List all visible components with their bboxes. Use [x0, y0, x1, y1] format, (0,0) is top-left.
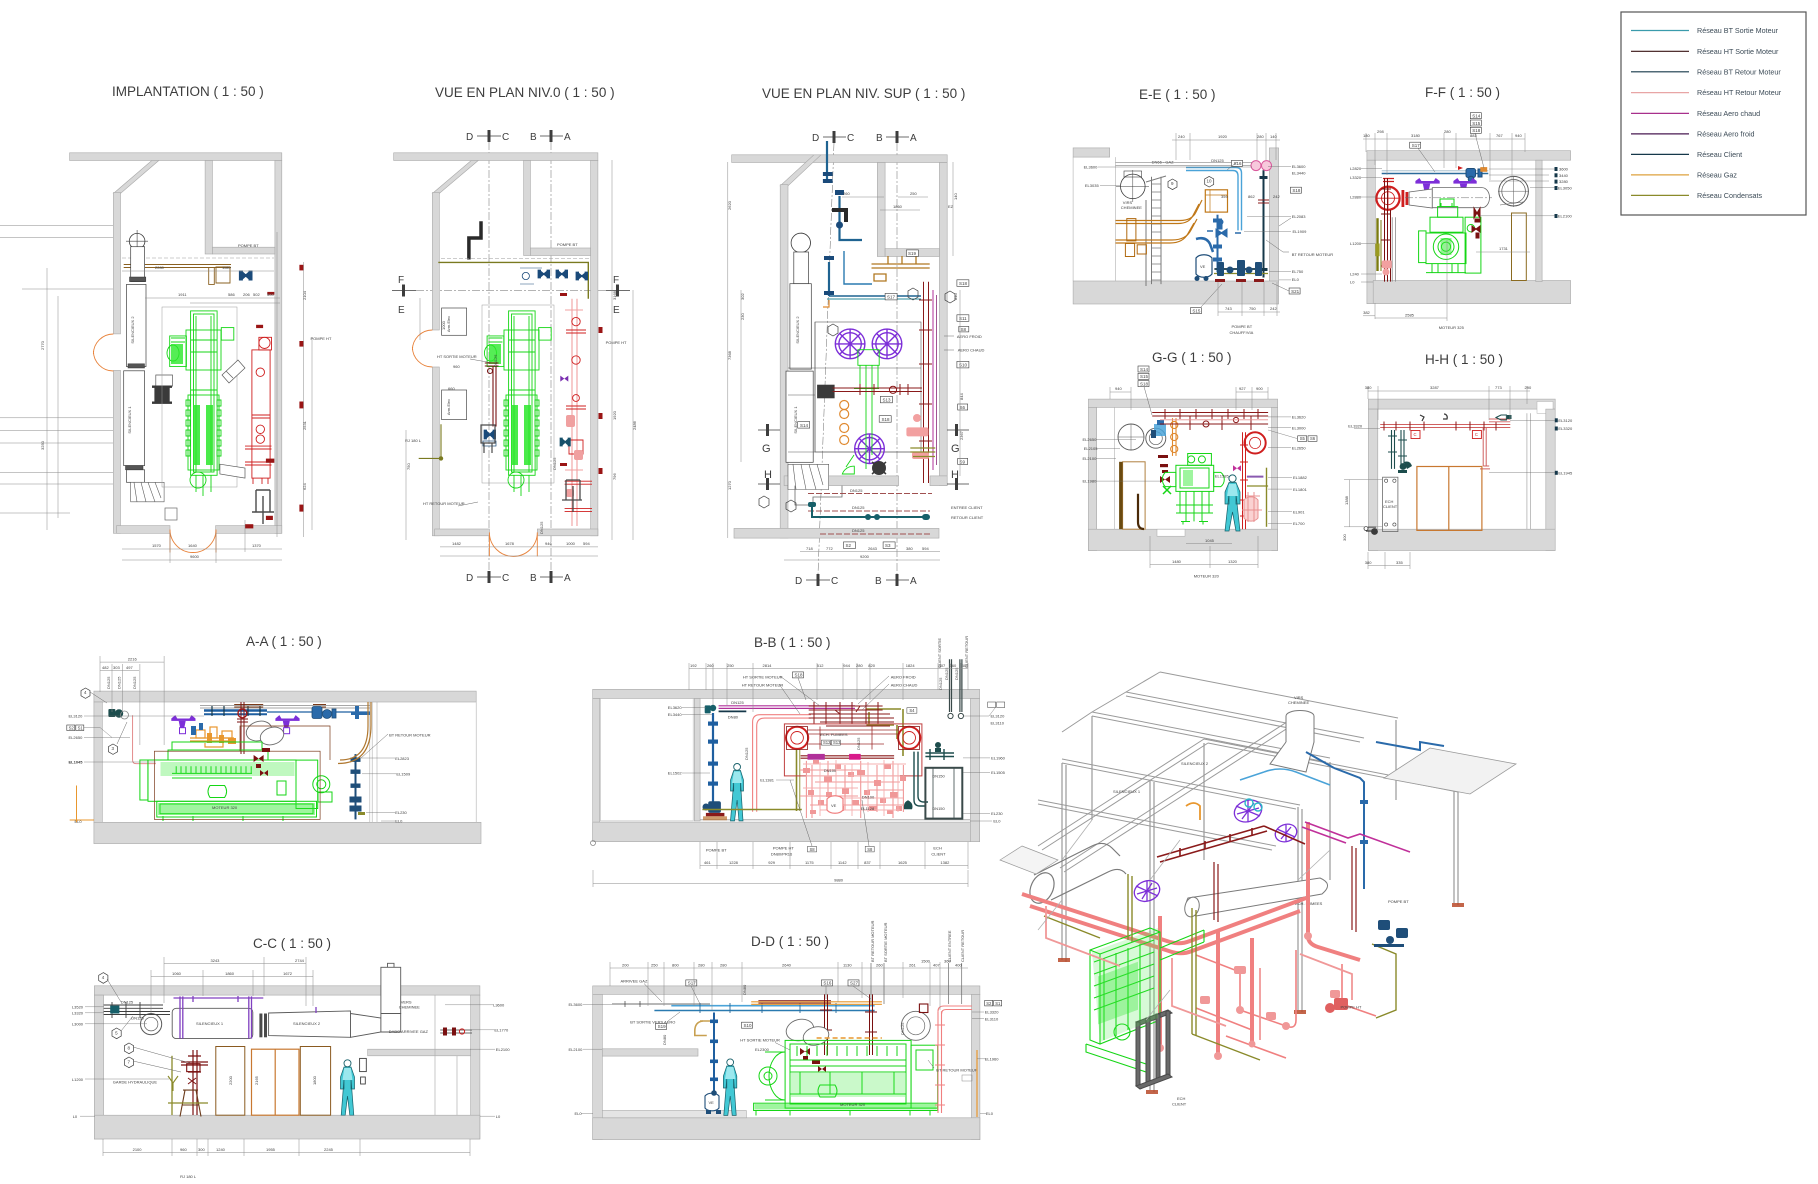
svg-text:1911: 1911 [178, 292, 187, 297]
svg-text:S8: S8 [810, 847, 816, 852]
svg-text:DABO ARRIVEE GAZ: DABO ARRIVEE GAZ [389, 1029, 429, 1034]
svg-text:S14: S14 [1472, 114, 1481, 119]
svg-text:1570: 1570 [152, 543, 162, 548]
svg-text:773: 773 [1495, 385, 1502, 390]
svg-text:1500: 1500 [921, 959, 931, 964]
svg-text:S8: S8 [867, 847, 873, 852]
svg-text:1640: 1640 [188, 543, 198, 548]
svg-text:DN125: DN125 [938, 677, 943, 690]
svg-text:SILENCIEUX 2: SILENCIEUX 2 [795, 316, 800, 344]
svg-text:DN125: DN125 [900, 1022, 905, 1035]
svg-text:750: 750 [1249, 306, 1256, 311]
svg-text:IMPLANTATION ( 1 : 50 ): IMPLANTATION ( 1 : 50 ) [112, 84, 264, 99]
svg-text:EL1505: EL1505 [991, 770, 1006, 775]
svg-text:DN125: DN125 [850, 488, 863, 493]
svg-text:SILENCIEUX 2: SILENCIEUX 2 [1181, 761, 1209, 766]
svg-text:DN125: DN125 [944, 667, 949, 680]
svg-text:S9: S9 [960, 460, 966, 465]
svg-text:L3600: L3600 [493, 1003, 505, 1008]
svg-text:2245: 2245 [324, 1147, 334, 1152]
svg-text:E: E [398, 305, 405, 316]
svg-text:EL3440: EL3440 [1292, 170, 1307, 175]
svg-text:RJ 180 L: RJ 180 L [180, 1174, 197, 1179]
svg-text:EL3110: EL3110 [985, 1016, 999, 1021]
svg-text:Réseau HT Retour Moteur: Réseau HT Retour Moteur [1697, 88, 1782, 97]
svg-text:EL3120: EL3120 [991, 714, 1006, 719]
svg-text:2280: 2280 [155, 265, 165, 270]
svg-text:F-F ( 1 : 50 ): F-F ( 1 : 50 ) [1425, 85, 1500, 100]
svg-text:820: 820 [868, 663, 875, 668]
svg-text:594: 594 [583, 541, 590, 546]
svg-text:2200: 2200 [228, 1075, 233, 1085]
svg-text:S19: S19 [908, 251, 917, 256]
svg-text:VUE EN PLAN NIV.0 ( 1 : 50 ): VUE EN PLAN NIV.0 ( 1 : 50 ) [435, 85, 615, 100]
svg-text:3180: 3180 [1411, 133, 1421, 138]
svg-text:140: 140 [953, 193, 958, 200]
svg-text:S3: S3 [885, 543, 891, 548]
svg-text:S13: S13 [833, 740, 841, 745]
svg-text:DN100: DN100 [862, 795, 875, 800]
svg-text:A: A [564, 573, 571, 584]
svg-text:500: 500 [267, 292, 274, 297]
svg-text:B: B [530, 132, 537, 143]
svg-text:EZ: EZ [948, 204, 954, 209]
svg-text:CLIENT RETOUR: CLIENT RETOUR [960, 930, 965, 962]
svg-text:359: 359 [1221, 194, 1228, 199]
svg-text:S21: S21 [1291, 289, 1300, 294]
svg-text:S18: S18 [1140, 381, 1149, 386]
svg-text:Réseau HT Sortie Moteur: Réseau HT Sortie Moteur [1697, 47, 1779, 56]
svg-text:L3320: L3320 [1350, 175, 1362, 180]
svg-text:9200: 9200 [860, 554, 870, 559]
svg-text:3440: 3440 [1559, 173, 1569, 178]
svg-text:AERO FROID: AERO FROID [957, 334, 982, 339]
svg-text:L0: L0 [73, 1114, 78, 1119]
svg-text:VE: VE [709, 1100, 715, 1105]
svg-text:840: 840 [953, 293, 958, 300]
svg-text:S14: S14 [1140, 367, 1149, 372]
svg-text:1860: 1860 [893, 204, 903, 209]
svg-text:S2: S2 [986, 1001, 992, 1006]
svg-text:S17: S17 [1412, 143, 1421, 148]
svg-text:EL1960: EL1960 [991, 756, 1006, 761]
svg-text:2486: 2486 [632, 420, 637, 430]
svg-text:EL0: EL0 [986, 1111, 994, 1116]
svg-text:335: 335 [1396, 560, 1403, 565]
svg-text:1320: 1320 [1228, 559, 1238, 564]
svg-text:1388: 1388 [1344, 495, 1349, 505]
svg-text:767: 767 [1496, 133, 1503, 138]
svg-text:L1200: L1200 [72, 1077, 84, 1082]
svg-text:1860: 1860 [225, 971, 235, 976]
svg-text:G: G [951, 443, 960, 455]
svg-text:2100: 2100 [133, 1147, 143, 1152]
svg-text:250: 250 [651, 963, 658, 968]
svg-text:B: B [530, 573, 537, 584]
svg-text:DN125: DN125 [131, 1015, 144, 1020]
svg-text:L3520: L3520 [72, 1005, 84, 1010]
svg-text:9600: 9600 [190, 554, 200, 559]
svg-text:S15: S15 [1472, 121, 1481, 126]
svg-text:S18: S18 [1292, 188, 1301, 193]
svg-text:EL750: EL750 [1292, 269, 1304, 274]
svg-text:EL1980: EL1980 [1083, 479, 1098, 484]
svg-text:C: C [502, 573, 509, 584]
svg-text:1270: 1270 [727, 480, 732, 490]
svg-text:DN125: DN125 [954, 667, 959, 680]
svg-text:S8: S8 [961, 327, 967, 332]
svg-text:VE: VE [831, 803, 837, 808]
svg-text:407: 407 [939, 663, 946, 668]
svg-text:F: F [613, 275, 619, 286]
svg-text:2620: 2620 [727, 200, 732, 210]
svg-text:2770: 2770 [40, 340, 45, 350]
svg-text:242: 242 [1273, 194, 1280, 199]
svg-text:EL1960: EL1960 [985, 1057, 1000, 1062]
svg-text:940: 940 [1515, 133, 1522, 138]
svg-text:200: 200 [622, 963, 629, 968]
svg-text:400: 400 [955, 963, 962, 968]
svg-text:482: 482 [102, 665, 109, 670]
svg-text:VUE EN PLAN NIV. SUP ( 1 : 50: VUE EN PLAN NIV. SUP ( 1 : 50 ) [762, 86, 965, 101]
svg-text:EL1945: EL1945 [1558, 471, 1573, 476]
svg-text:L1200: L1200 [1350, 241, 1362, 246]
svg-text:1228: 1228 [729, 860, 739, 865]
svg-text:772: 772 [826, 546, 833, 551]
svg-text:BT RETOUR MOTEUR: BT RETOUR MOTEUR [1292, 252, 1334, 257]
svg-text:1672: 1672 [283, 971, 293, 976]
svg-text:S19: S19 [658, 1024, 667, 1029]
svg-text:382: 382 [1363, 310, 1370, 315]
svg-text:Réseau BT Retour Moteur: Réseau BT Retour Moteur [1697, 67, 1781, 76]
svg-text:CLIENT: CLIENT [1383, 504, 1398, 509]
svg-text:AERO CHAUD: AERO CHAUD [891, 683, 918, 688]
svg-text:2744: 2744 [295, 958, 305, 963]
svg-text:EL2100: EL2100 [1083, 456, 1098, 461]
svg-text:280: 280 [1257, 134, 1264, 139]
svg-text:DN100: DN100 [824, 768, 837, 773]
svg-text:1180: 1180 [222, 265, 231, 270]
svg-text:206: 206 [243, 292, 250, 297]
svg-text:S17: S17 [688, 981, 697, 986]
svg-text:L2880: L2880 [1350, 195, 1362, 200]
svg-text:844: 844 [959, 393, 964, 400]
svg-text:MOTEUR 320: MOTEUR 320 [212, 805, 238, 810]
svg-text:3243: 3243 [211, 958, 221, 963]
svg-text:HT RETOUR MOTEUR: HT RETOUR MOTEUR [423, 501, 465, 506]
svg-text:S1: S1 [995, 1001, 1001, 1006]
svg-text:240: 240 [1178, 134, 1185, 139]
svg-text:CHEMINEE: CHEMINEE [399, 1005, 420, 1010]
svg-text:S1: S1 [78, 725, 84, 730]
svg-text:POMPE HT: POMPE HT [606, 340, 627, 345]
svg-text:927: 927 [1239, 386, 1246, 391]
svg-text:280: 280 [856, 663, 863, 668]
svg-text:900: 900 [1256, 386, 1263, 391]
svg-text:S4: S4 [909, 708, 915, 713]
svg-text:261: 261 [909, 963, 916, 968]
svg-text:S6: S6 [1310, 436, 1316, 441]
svg-text:1678: 1678 [505, 541, 515, 546]
svg-text:G-G ( 1 : 50 ): G-G ( 1 : 50 ) [1152, 350, 1232, 365]
svg-text:EL2650: EL2650 [1083, 437, 1098, 442]
svg-text:EL3110: EL3110 [991, 720, 1005, 725]
svg-text:7368: 7368 [727, 350, 732, 360]
svg-text:EL3050: EL3050 [1558, 186, 1573, 191]
svg-text:A: A [910, 576, 917, 587]
svg-text:SILENCIEUX 2: SILENCIEUX 2 [130, 316, 135, 344]
svg-text:EL3600: EL3600 [569, 1002, 584, 1007]
svg-text:D: D [466, 573, 473, 584]
svg-text:Réseau BT Sortie Moteur: Réseau BT Sortie Moteur [1697, 26, 1779, 35]
svg-text:DN125: DN125 [106, 676, 111, 689]
svg-text:GARDE HYDRAULIQUE: GARDE HYDRAULIQUE [113, 1080, 158, 1085]
svg-text:Arm.Elec: Arm.Elec [446, 316, 451, 332]
svg-text:EL1801: EL1801 [1293, 487, 1308, 492]
svg-text:S13: S13 [883, 398, 892, 403]
svg-text:D: D [795, 576, 802, 587]
svg-text:EL3620: EL3620 [1292, 415, 1307, 420]
svg-text:718: 718 [806, 546, 813, 551]
svg-text:1175: 1175 [805, 860, 814, 865]
svg-text:E: E [613, 305, 620, 316]
svg-text:192: 192 [690, 663, 697, 668]
svg-text:497: 497 [126, 665, 133, 670]
svg-text:A-A ( 1 : 50 ): A-A ( 1 : 50 ) [246, 634, 322, 649]
svg-text:EL3440: EL3440 [668, 712, 683, 717]
svg-text:242: 242 [1270, 306, 1277, 311]
svg-text:380: 380 [1365, 385, 1372, 390]
svg-text:DN125: DN125 [493, 354, 498, 367]
svg-text:1955: 1955 [266, 1147, 276, 1152]
svg-text:10: 10 [1207, 179, 1213, 184]
svg-text:800: 800 [672, 963, 679, 968]
svg-text:CLIENT: CLIENT [931, 852, 946, 857]
svg-text:3168: 3168 [612, 290, 617, 300]
svg-text:944: 944 [843, 663, 850, 668]
svg-text:DN125: DN125 [539, 521, 544, 534]
svg-text:EL3320: EL3320 [1348, 424, 1363, 429]
svg-text:L0: L0 [1350, 280, 1355, 285]
svg-text:C: C [847, 133, 854, 144]
svg-text:B: B [876, 133, 883, 144]
svg-text:ARRIVEE GAZ: ARRIVEE GAZ [621, 979, 648, 984]
svg-text:H-H ( 1 : 50 ): H-H ( 1 : 50 ) [1425, 352, 1503, 367]
svg-text:EL3120: EL3120 [69, 714, 84, 719]
svg-text:EL1882: EL1882 [1293, 475, 1308, 480]
svg-text:796: 796 [612, 473, 617, 480]
svg-text:S18: S18 [882, 417, 891, 422]
svg-text:MOTEUR 320: MOTEUR 320 [1194, 574, 1220, 579]
svg-text:512: 512 [817, 663, 824, 668]
svg-text:BT RETOUR MOTEUR: BT RETOUR MOTEUR [870, 920, 875, 962]
svg-text:EL1585: EL1585 [1215, 474, 1230, 479]
svg-text:S16: S16 [823, 981, 832, 986]
svg-text:SILENCIEUX 1: SILENCIEUX 1 [793, 406, 798, 434]
svg-text:EL0: EL0 [993, 819, 1001, 824]
svg-text:298: 298 [1377, 129, 1384, 134]
svg-text:1731: 1731 [1499, 246, 1509, 251]
svg-text:S2: S2 [69, 725, 75, 730]
svg-text:HT SORTIE MOTEUR: HT SORTIE MOTEUR [740, 1038, 780, 1043]
svg-text:SILENCIEUX 1: SILENCIEUX 1 [196, 1021, 224, 1026]
svg-text:3250: 3250 [40, 440, 45, 450]
svg-text:250: 250 [727, 663, 734, 668]
svg-text:POMPE HT: POMPE HT [311, 336, 332, 341]
svg-text:EL3000: EL3000 [1292, 425, 1307, 430]
svg-text:Réseau Aero chaud: Réseau Aero chaud [1697, 109, 1760, 118]
svg-text:DN125: DN125 [744, 747, 749, 760]
svg-text:S12: S12 [823, 740, 831, 745]
svg-text:940: 940 [1115, 386, 1122, 391]
svg-text:260: 260 [707, 663, 714, 668]
svg-text:D-D ( 1 : 50 ): D-D ( 1 : 50 ) [751, 934, 829, 949]
svg-text:S10: S10 [959, 363, 968, 368]
svg-text:S15: S15 [1192, 309, 1201, 314]
svg-text:3600: 3600 [1559, 167, 1569, 172]
svg-text:502: 502 [253, 292, 260, 297]
svg-text:Réseau Aero froid: Réseau Aero froid [1697, 129, 1755, 138]
svg-text:POMPE BT: POMPE BT [557, 242, 578, 247]
svg-text:CHEMINEE: CHEMINEE [1288, 700, 1309, 705]
svg-text:POMPE BT: POMPE BT [238, 243, 259, 248]
svg-text:EL230: EL230 [991, 811, 1003, 816]
svg-text:B: B [875, 576, 882, 587]
svg-text:EL3320: EL3320 [1558, 426, 1573, 431]
svg-text:DN125: DN125 [856, 737, 861, 750]
svg-text:960: 960 [180, 1147, 187, 1152]
svg-text:ECH: ECH [1177, 1096, 1186, 1101]
svg-text:EL0: EL0 [395, 819, 403, 824]
svg-text:C-C ( 1 : 50 ): C-C ( 1 : 50 ) [253, 936, 331, 951]
svg-text:SILENCIEUX 2: SILENCIEUX 2 [293, 1021, 321, 1026]
svg-text:EL0: EL0 [1292, 277, 1300, 282]
svg-text:VE: VE [1200, 264, 1206, 269]
svg-text:EL2100: EL2100 [496, 1047, 511, 1052]
svg-text:586: 586 [228, 292, 235, 297]
svg-text:MOTEUR 320: MOTEUR 320 [840, 1102, 866, 1107]
svg-text:EL2300: EL2300 [755, 1047, 770, 1052]
svg-text:360: 360 [950, 663, 957, 668]
svg-text:2643: 2643 [868, 546, 878, 551]
svg-text:HT RETOUR MOTEUR: HT RETOUR MOTEUR [742, 683, 784, 688]
svg-text:2585: 2585 [1405, 313, 1415, 318]
svg-text:EL1381: EL1381 [760, 777, 775, 782]
svg-text:POMPE HT: POMPE HT [773, 846, 794, 851]
svg-text:BT RETOUR MOTEUR: BT RETOUR MOTEUR [936, 1068, 978, 1073]
svg-text:EL1502: EL1502 [668, 771, 683, 776]
svg-text:A: A [910, 133, 917, 144]
svg-text:1920: 1920 [1218, 134, 1228, 139]
svg-text:CLIENT ENTREE: CLIENT ENTREE [947, 930, 952, 962]
svg-text:RETOUR CLIENT: RETOUR CLIENT [951, 515, 984, 520]
svg-text:BT SORTIE MOTEUR: BT SORTIE MOTEUR [883, 922, 888, 962]
svg-text:G: G [762, 443, 771, 455]
svg-text:2165: 2165 [254, 1075, 259, 1085]
svg-text:1130: 1130 [843, 963, 852, 968]
svg-text:DN80/PR16: DN80/PR16 [771, 852, 793, 857]
svg-text:EL3600: EL3600 [1292, 164, 1307, 169]
svg-text:EL3320: EL3320 [985, 1010, 1000, 1015]
svg-text:929: 929 [768, 860, 775, 865]
svg-text:EL1045: EL1045 [69, 760, 84, 765]
svg-text:EL1909: EL1909 [1293, 229, 1308, 234]
svg-text:180: 180 [1363, 133, 1370, 138]
svg-text:DN80: DN80 [742, 984, 747, 995]
svg-text:DN150: DN150 [932, 806, 945, 811]
svg-text:EL1770: EL1770 [494, 1028, 509, 1033]
svg-text:C: C [831, 576, 838, 587]
svg-text:946: 946 [545, 541, 552, 546]
svg-text:L3000: L3000 [72, 1021, 84, 1026]
svg-text:HT SORTIE MOTEUR: HT SORTIE MOTEUR [743, 675, 783, 680]
svg-text:407: 407 [933, 963, 940, 968]
svg-text:1000: 1000 [566, 541, 576, 546]
svg-text:743: 743 [1225, 306, 1232, 311]
svg-text:1045: 1045 [1205, 538, 1215, 543]
svg-text:3280: 3280 [1559, 179, 1569, 184]
svg-text:D: D [812, 133, 819, 144]
svg-text:461: 461 [704, 860, 711, 865]
svg-text:L2820: L2820 [1350, 166, 1362, 171]
svg-text:S18: S18 [795, 673, 804, 678]
svg-text:S6: S6 [960, 405, 966, 410]
svg-text:S18: S18 [959, 281, 968, 286]
svg-text:1482: 1482 [452, 541, 462, 546]
svg-text:AERO CHAUD: AERO CHAUD [958, 348, 985, 353]
svg-text:960: 960 [453, 364, 460, 369]
svg-text:300: 300 [198, 1147, 205, 1152]
svg-text:POMPE BT: POMPE BT [1388, 899, 1409, 904]
svg-text:2531: 2531 [302, 420, 307, 430]
svg-text:1370: 1370 [252, 543, 262, 548]
svg-text:EL2083: EL2083 [1292, 214, 1307, 219]
svg-text:DN150: DN150 [932, 774, 945, 779]
svg-text:S2: S2 [846, 543, 852, 548]
svg-text:2104: 2104 [302, 290, 307, 300]
svg-text:1000: 1000 [441, 320, 446, 330]
svg-text:HT SORTIE MOTEUR: HT SORTIE MOTEUR [437, 354, 477, 359]
svg-text:ENTREE CLIENT: ENTREE CLIENT [951, 505, 983, 510]
svg-text:DN125: DN125 [852, 528, 865, 533]
svg-text:ECH: ECH [933, 846, 942, 851]
svg-text:260: 260 [843, 191, 850, 196]
svg-text:2216: 2216 [128, 657, 138, 662]
svg-text:EL2823: EL2823 [395, 756, 410, 761]
svg-text:3287: 3287 [1430, 385, 1440, 390]
svg-text:S10: S10 [744, 1023, 753, 1028]
svg-text:750: 750 [406, 463, 411, 470]
svg-text:S5: S5 [1300, 436, 1306, 441]
svg-text:POMPE BT: POMPE BT [1232, 324, 1253, 329]
svg-text:EL3035: EL3035 [1085, 183, 1100, 188]
svg-text:D: D [466, 132, 473, 143]
svg-text:837: 837 [864, 860, 871, 865]
svg-text:290: 290 [1525, 385, 1532, 390]
svg-text:280: 280 [698, 963, 705, 968]
svg-text:DN125: DN125 [852, 505, 865, 510]
svg-text:C: C [1414, 432, 1417, 437]
svg-text:2640: 2640 [782, 963, 792, 968]
svg-text:EL3620: EL3620 [668, 705, 683, 710]
svg-text:A: A [564, 132, 571, 143]
svg-text:380: 380 [1365, 560, 1372, 565]
svg-text:DN66 - GAZ: DN66 - GAZ [1152, 160, 1175, 165]
svg-text:1824: 1824 [906, 663, 916, 668]
svg-text:280: 280 [1444, 129, 1451, 134]
svg-text:EL2100: EL2100 [1558, 214, 1573, 219]
svg-text:883: 883 [1470, 133, 1477, 138]
